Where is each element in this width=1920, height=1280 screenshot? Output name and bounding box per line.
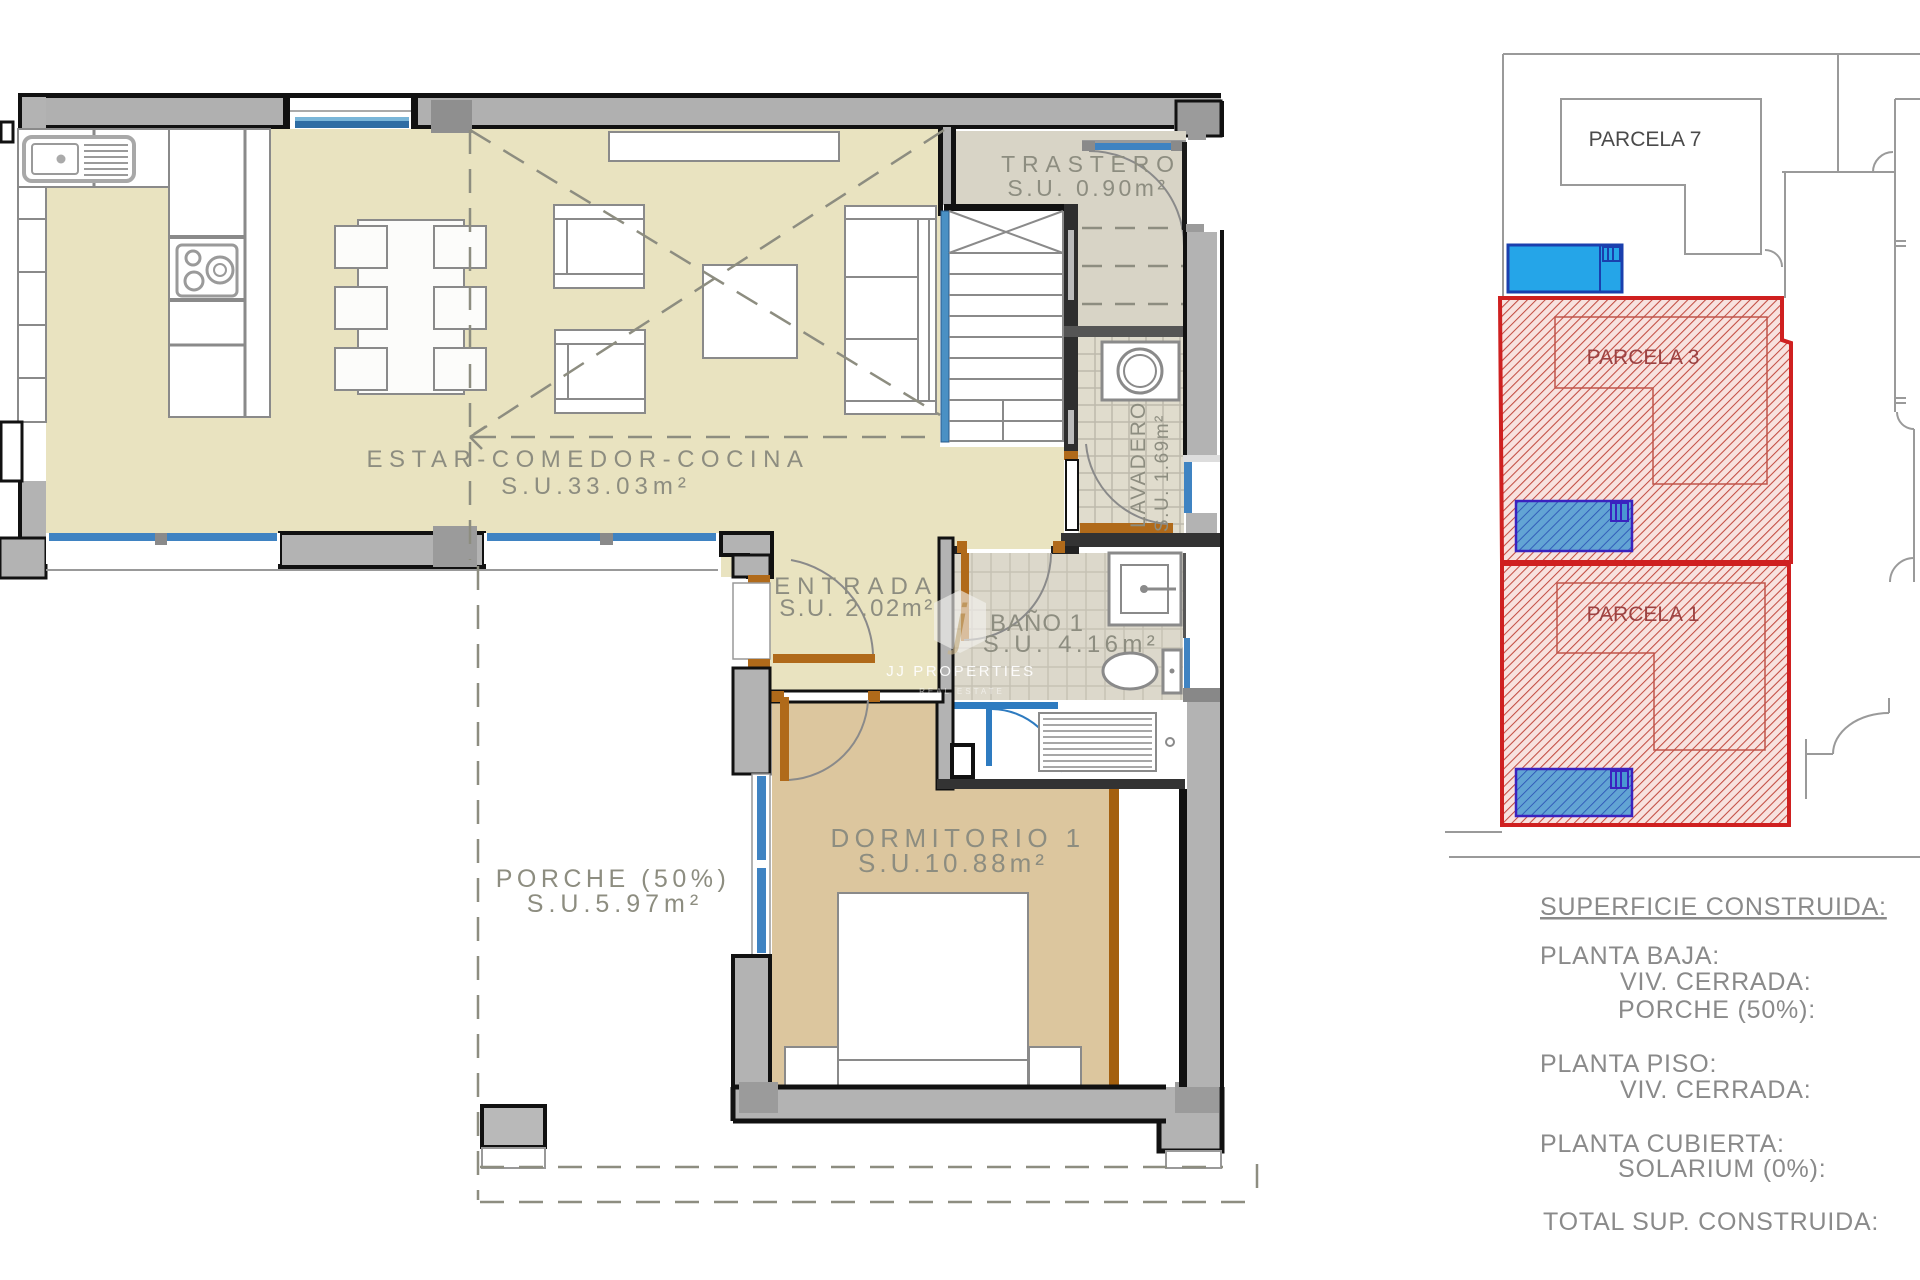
svg-text:TRASTERO: TRASTERO xyxy=(1001,151,1181,177)
svg-text:S.U. 4.16m²: S.U. 4.16m² xyxy=(983,631,1159,658)
svg-text:PLANTA CUBIERTA:: PLANTA CUBIERTA: xyxy=(1540,1130,1785,1158)
svg-text:SOLARIUM (0%):: SOLARIUM (0%): xyxy=(1618,1155,1826,1183)
svg-text:S.U. 1.69m²: S.U. 1.69m² xyxy=(1152,414,1173,532)
svg-text:ESTAR-COMEDOR-COCINA: ESTAR-COMEDOR-COCINA xyxy=(367,446,810,473)
svg-text:PLANTA PISO:: PLANTA PISO: xyxy=(1540,1050,1717,1078)
svg-text:REAL ESTATE: REAL ESTATE xyxy=(919,687,1005,696)
svg-text:S.U.5.97m²: S.U.5.97m² xyxy=(527,890,703,918)
svg-text:S.U. 2.02m²: S.U. 2.02m² xyxy=(779,595,935,622)
svg-text:S.U. 0.90m²: S.U. 0.90m² xyxy=(1007,175,1168,201)
svg-text:LAVADERO: LAVADERO xyxy=(1127,401,1150,528)
svg-text:S.U.33.03m²: S.U.33.03m² xyxy=(501,473,691,500)
svg-text:PARCELA 1: PARCELA 1 xyxy=(1587,603,1700,626)
svg-text:PARCELA 7: PARCELA 7 xyxy=(1589,128,1702,151)
svg-text:PLANTA BAJA:: PLANTA BAJA: xyxy=(1540,942,1720,970)
svg-text:TOTAL SUP. CONSTRUIDA:: TOTAL SUP. CONSTRUIDA: xyxy=(1543,1208,1879,1236)
svg-text:SUPERFICIE CONSTRUIDA:: SUPERFICIE CONSTRUIDA: xyxy=(1540,893,1887,921)
svg-text:VIV. CERRADA:: VIV. CERRADA: xyxy=(1620,968,1811,996)
svg-text:PORCHE (50%):: PORCHE (50%): xyxy=(1618,996,1816,1024)
svg-text:PARCELA 3: PARCELA 3 xyxy=(1587,346,1700,369)
svg-text:VIV. CERRADA:: VIV. CERRADA: xyxy=(1620,1076,1811,1104)
svg-text:PORCHE (50%): PORCHE (50%) xyxy=(496,865,731,893)
svg-text:S.U.10.88m²: S.U.10.88m² xyxy=(858,848,1048,878)
svg-text:JJ PROPERTIES: JJ PROPERTIES xyxy=(886,663,1035,680)
